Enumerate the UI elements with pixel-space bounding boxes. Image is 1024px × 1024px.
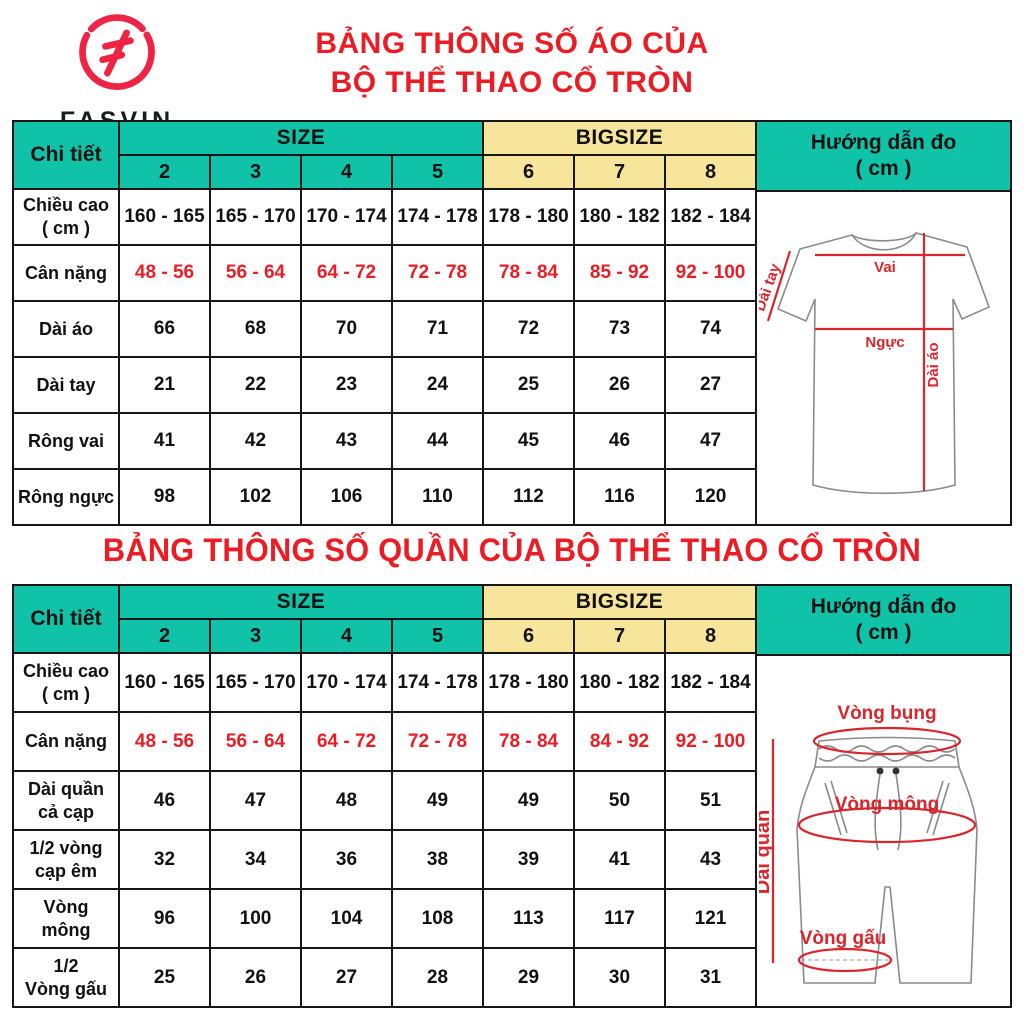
size-col-6: 6 [483, 155, 574, 189]
table-row: 1/2 Vòng gấu25262728293031 [13, 948, 756, 1007]
value-cell: 56 - 64 [210, 712, 301, 771]
shirt-section: Chi tiết SIZE BIGSIZE 2 3 4 5 6 7 8 Chiề… [12, 120, 1012, 526]
row-label: Chiều cao ( cm ) [13, 653, 119, 712]
value-cell: 73 [574, 301, 665, 357]
detail-column-header: Chi tiết [13, 585, 119, 653]
value-cell: 117 [574, 889, 665, 948]
row-label: Vòng mông [13, 889, 119, 948]
value-cell: 182 - 184 [665, 189, 756, 245]
value-cell: 49 [392, 771, 483, 830]
value-cell: 120 [665, 469, 756, 525]
size-chart-infographic: FASVIN Sports fashion BẢNG THÔNG SỐ ÁO C… [0, 0, 1024, 1024]
pants-table-title: BẢNG THÔNG SỐ QUẦN CỦA BỘ THỂ THAO CỔ TR… [20, 532, 1003, 569]
value-cell: 180 - 182 [574, 653, 665, 712]
value-cell: 25 [483, 357, 574, 413]
guide-header: Hướng dẫn đo ( cm ) [755, 584, 1012, 656]
value-cell: 38 [392, 830, 483, 889]
row-label: Cân nặng [13, 245, 119, 301]
value-cell: 121 [665, 889, 756, 948]
bigsize-group-header: BIGSIZE [483, 585, 756, 619]
value-cell: 21 [119, 357, 210, 413]
guide-header: Hướng dẫn đo ( cm ) [755, 120, 1012, 192]
size-col-2: 2 [119, 155, 210, 189]
value-cell: 43 [301, 413, 392, 469]
shoulder-label: Vai [874, 259, 896, 276]
value-cell: 116 [574, 469, 665, 525]
value-cell: 46 [119, 771, 210, 830]
value-cell: 27 [665, 357, 756, 413]
pants-section: Chi tiết SIZE BIGSIZE 2 3 4 5 6 7 8 Chiề… [12, 584, 1012, 1008]
shirt-measure-guide-column: Hướng dẫn đo ( cm ) Vai Dài tay Ngực Dài [755, 120, 1012, 526]
table-row: Dài quần cả cạp46474849495051 [13, 771, 756, 830]
value-cell: 84 - 92 [574, 712, 665, 771]
shirt-spec-table: Chi tiết SIZE BIGSIZE 2 3 4 5 6 7 8 Chiề… [12, 120, 757, 526]
size-col-7: 7 [574, 155, 665, 189]
value-cell: 170 - 174 [301, 653, 392, 712]
detail-column-header: Chi tiết [13, 121, 119, 189]
value-cell: 29 [483, 948, 574, 1007]
value-cell: 100 [210, 889, 301, 948]
value-cell: 66 [119, 301, 210, 357]
value-cell: 24 [392, 357, 483, 413]
value-cell: 72 [483, 301, 574, 357]
guide-header-line1: Hướng dẫn đo [811, 130, 957, 156]
value-cell: 104 [301, 889, 392, 948]
shirt-title-line2: BỘ THỂ THAO CỔ TRÒN [0, 63, 1024, 102]
value-cell: 112 [483, 469, 574, 525]
hem-label: Vòng gấu [799, 928, 886, 949]
value-cell: 102 [210, 469, 301, 525]
size-group-header: SIZE [119, 121, 483, 155]
value-cell: 72 - 78 [392, 245, 483, 301]
shirt-diagram-cell: Vai Dài tay Ngực Dài áo [755, 192, 1012, 526]
value-cell: 32 [119, 830, 210, 889]
shirt-title-line1: BẢNG THÔNG SỐ ÁO CỦA [0, 24, 1024, 63]
table-row: Chiều cao ( cm )160 - 165165 - 170170 - … [13, 189, 756, 245]
value-cell: 178 - 180 [483, 189, 574, 245]
table-row: Cân nặng48 - 5656 - 6464 - 7272 - 7878 -… [13, 712, 756, 771]
pants-diagram-cell: Vòng bụng Vòng mông Vòng gấu Dài quần [755, 656, 1012, 1008]
shirt-diagram: Vai Dài tay Ngực Dài áo [759, 193, 1009, 523]
value-cell: 43 [665, 830, 756, 889]
value-cell: 28 [392, 948, 483, 1007]
value-cell: 64 - 72 [301, 712, 392, 771]
value-cell: 182 - 184 [665, 653, 756, 712]
guide-header-line2: ( cm ) [856, 620, 912, 646]
table-row: 1/2 vòng cạp êm32343638394143 [13, 830, 756, 889]
row-label: Cân nặng [13, 712, 119, 771]
value-cell: 48 [301, 771, 392, 830]
shirt-length-label: Dài áo [925, 342, 942, 387]
value-cell: 48 - 56 [119, 712, 210, 771]
guide-header-line1: Hướng dẫn đo [811, 594, 957, 620]
shirt-table-title: BẢNG THÔNG SỐ ÁO CỦA BỘ THỂ THAO CỔ TRÒN [0, 24, 1024, 102]
size-col-3: 3 [210, 155, 301, 189]
value-cell: 160 - 165 [119, 189, 210, 245]
value-cell: 110 [392, 469, 483, 525]
value-cell: 92 - 100 [665, 712, 756, 771]
value-cell: 31 [665, 948, 756, 1007]
value-cell: 178 - 180 [483, 653, 574, 712]
table-row: Rông vai41424344454647 [13, 413, 756, 469]
size-col-2: 2 [119, 619, 210, 653]
value-cell: 78 - 84 [483, 245, 574, 301]
value-cell: 180 - 182 [574, 189, 665, 245]
value-cell: 44 [392, 413, 483, 469]
value-cell: 96 [119, 889, 210, 948]
value-cell: 85 - 92 [574, 245, 665, 301]
pants-spec-table: Chi tiết SIZE BIGSIZE 2 3 4 5 6 7 8 Chiề… [12, 584, 757, 1008]
value-cell: 174 - 178 [392, 189, 483, 245]
table-row: Rông ngực98102106110112116120 [13, 469, 756, 525]
size-col-7: 7 [574, 619, 665, 653]
row-label: Chiều cao ( cm ) [13, 189, 119, 245]
value-cell: 68 [210, 301, 301, 357]
guide-header-line2: ( cm ) [856, 156, 912, 182]
row-label: Dài áo [13, 301, 119, 357]
value-cell: 41 [119, 413, 210, 469]
value-cell: 113 [483, 889, 574, 948]
size-col-6: 6 [483, 619, 574, 653]
value-cell: 39 [483, 830, 574, 889]
size-group-header: SIZE [119, 585, 483, 619]
size-col-8: 8 [665, 155, 756, 189]
value-cell: 70 [301, 301, 392, 357]
size-col-3: 3 [210, 619, 301, 653]
hip-label: Vòng mông [834, 794, 938, 815]
value-cell: 50 [574, 771, 665, 830]
size-col-5: 5 [392, 619, 483, 653]
table-row: Vòng mông96100104108113117121 [13, 889, 756, 948]
waist-label: Vòng bụng [837, 703, 936, 724]
table-row: Dài tay21222324252627 [13, 357, 756, 413]
value-cell: 34 [210, 830, 301, 889]
value-cell: 42 [210, 413, 301, 469]
value-cell: 23 [301, 357, 392, 413]
pants-measure-guide-column: Hướng dẫn đo ( cm ) [755, 584, 1012, 1008]
pants-length-label: Dài quần [759, 810, 774, 894]
value-cell: 26 [210, 948, 301, 1007]
value-cell: 92 - 100 [665, 245, 756, 301]
value-cell: 165 - 170 [210, 653, 301, 712]
value-cell: 56 - 64 [210, 245, 301, 301]
value-cell: 51 [665, 771, 756, 830]
chest-label: Ngực [865, 334, 904, 351]
value-cell: 74 [665, 301, 756, 357]
value-cell: 71 [392, 301, 483, 357]
table-row: Chiều cao ( cm )160 - 165165 - 170170 - … [13, 653, 756, 712]
size-col-4: 4 [301, 619, 392, 653]
value-cell: 36 [301, 830, 392, 889]
table-row: Dài áo66687071727374 [13, 301, 756, 357]
value-cell: 41 [574, 830, 665, 889]
table-row: Cân nặng48 - 5656 - 6464 - 7272 - 7878 -… [13, 245, 756, 301]
value-cell: 78 - 84 [483, 712, 574, 771]
value-cell: 25 [119, 948, 210, 1007]
row-label: Dài quần cả cạp [13, 771, 119, 830]
row-label: 1/2 vòng cạp êm [13, 830, 119, 889]
value-cell: 45 [483, 413, 574, 469]
value-cell: 98 [119, 469, 210, 525]
value-cell: 165 - 170 [210, 189, 301, 245]
value-cell: 174 - 178 [392, 653, 483, 712]
value-cell: 72 - 78 [392, 712, 483, 771]
value-cell: 47 [665, 413, 756, 469]
bigsize-group-header: BIGSIZE [483, 121, 756, 155]
size-col-5: 5 [392, 155, 483, 189]
value-cell: 64 - 72 [301, 245, 392, 301]
shorts-diagram: Vòng bụng Vòng mông Vòng gấu Dài quần [759, 657, 1009, 1005]
size-col-8: 8 [665, 619, 756, 653]
value-cell: 26 [574, 357, 665, 413]
value-cell: 48 - 56 [119, 245, 210, 301]
value-cell: 49 [483, 771, 574, 830]
value-cell: 170 - 174 [301, 189, 392, 245]
row-label: Dài tay [13, 357, 119, 413]
value-cell: 47 [210, 771, 301, 830]
value-cell: 160 - 165 [119, 653, 210, 712]
row-label: Rông vai [13, 413, 119, 469]
value-cell: 106 [301, 469, 392, 525]
value-cell: 27 [301, 948, 392, 1007]
value-cell: 22 [210, 357, 301, 413]
value-cell: 46 [574, 413, 665, 469]
row-label: 1/2 Vòng gấu [13, 948, 119, 1007]
value-cell: 108 [392, 889, 483, 948]
size-col-4: 4 [301, 155, 392, 189]
row-label: Rông ngực [13, 469, 119, 525]
value-cell: 30 [574, 948, 665, 1007]
